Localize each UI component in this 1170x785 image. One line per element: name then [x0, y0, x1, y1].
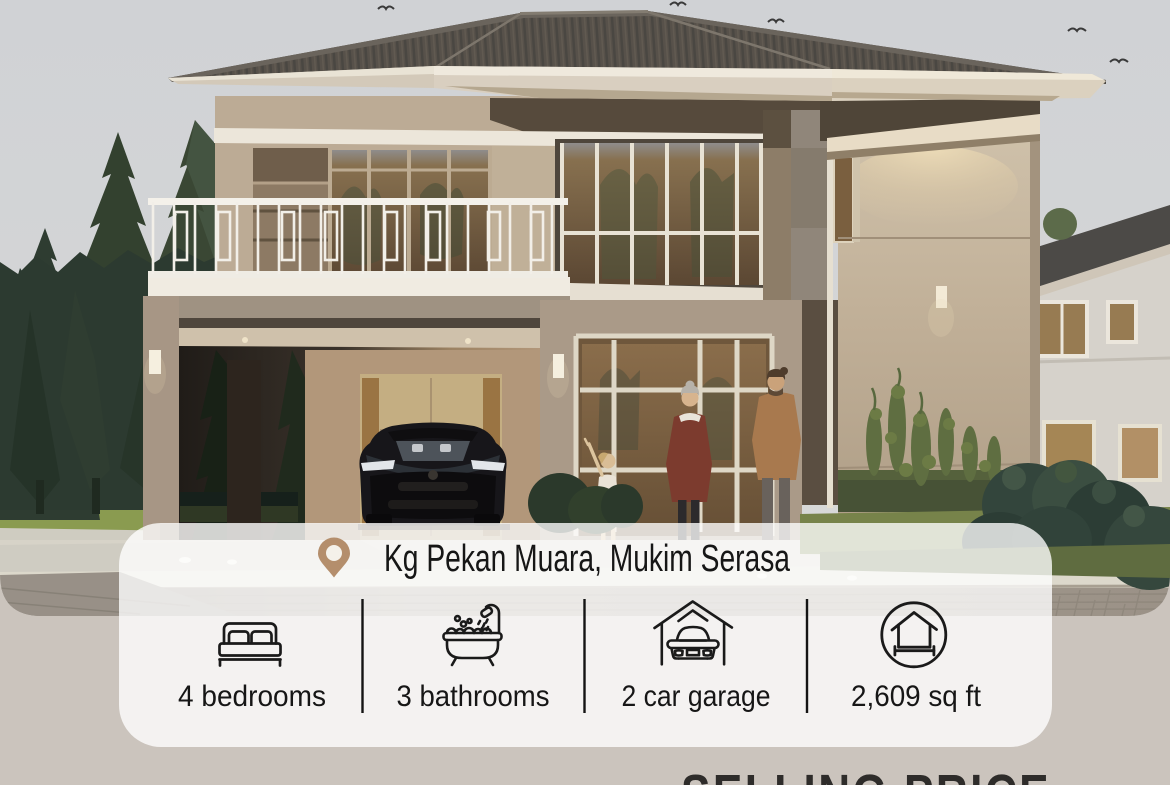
svg-text:Kg Pekan Muara, Mukim Serasa: Kg Pekan Muara, Mukim Serasa [384, 538, 791, 580]
svg-text:2,609 sq ft: 2,609 sq ft [851, 680, 982, 713]
svg-text:3 bathrooms: 3 bathrooms [397, 680, 550, 713]
svg-text:2 car garage: 2 car garage [622, 680, 771, 713]
svg-text:SELLING PRICE: SELLING PRICE [681, 764, 1051, 785]
svg-text:4 bedrooms: 4 bedrooms [178, 680, 326, 713]
